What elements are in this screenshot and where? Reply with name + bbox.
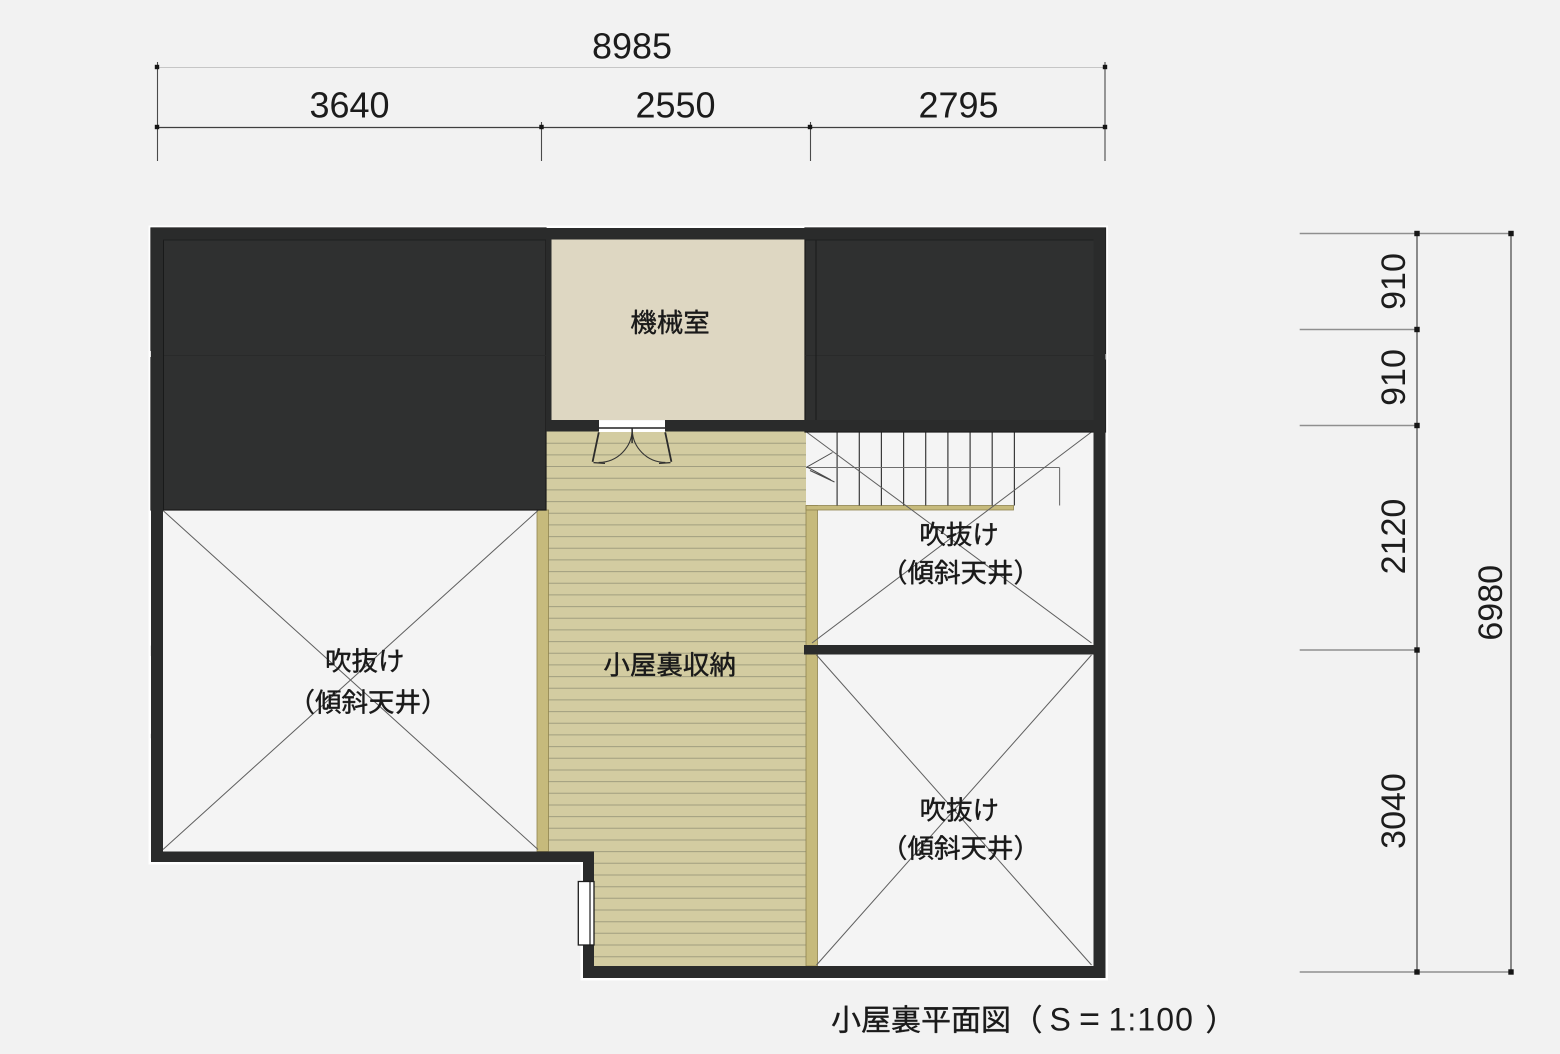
- svg-text:2550: 2550: [635, 85, 715, 126]
- svg-text:=: =: [1079, 998, 1100, 1039]
- svg-text:3040: 3040: [1375, 773, 1413, 849]
- svg-text:2795: 2795: [918, 85, 998, 126]
- svg-text:910: 910: [1375, 253, 1413, 310]
- svg-text:3640: 3640: [309, 85, 389, 126]
- svg-text:1:100: 1:100: [1109, 1002, 1195, 1038]
- svg-text:2120: 2120: [1375, 499, 1413, 575]
- svg-text:6980: 6980: [1472, 565, 1510, 641]
- svg-text:910: 910: [1375, 349, 1413, 406]
- svg-text:8985: 8985: [592, 26, 672, 67]
- svg-text:S: S: [1050, 1002, 1071, 1038]
